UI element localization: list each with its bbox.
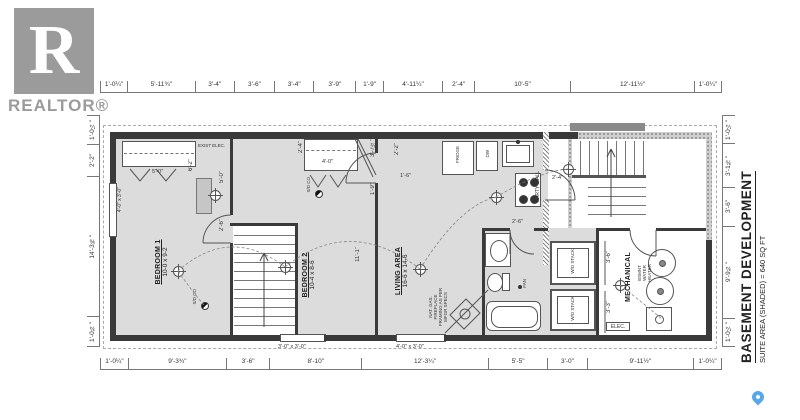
- dim-closet2-width: 2'-4": [298, 141, 304, 153]
- dim-bed1-door: 2'-6": [219, 219, 225, 231]
- dim-wd-b: 3'-3": [606, 301, 612, 313]
- wiring-arc: [496, 169, 568, 197]
- dim-closet2-length: 4'-0": [322, 159, 333, 165]
- dim-living-length: 11'-1": [355, 247, 361, 262]
- stair-arrow-middle: [260, 253, 268, 327]
- window-bottom-b-label: 4'-0" x 3'-0": [396, 344, 424, 350]
- room-label-bedroom2: BEDROOM 2 10-4 x 8-6: [302, 247, 320, 303]
- page-title: BASEMENT DEVELOPMENT: [739, 171, 756, 363]
- dim-seg: 1'-0¼": [87, 115, 99, 144]
- window-left-label: 4'-0" x 3'-0": [117, 187, 123, 212]
- dim-strip-left: 1'-0¼" 2'-2" 14'-3⅝" 1'-0¾": [87, 115, 100, 347]
- wiring-arc: [178, 247, 285, 271]
- dim-seg: 2'-2": [87, 144, 99, 176]
- dim-wd-a: 3'-6": [606, 251, 612, 263]
- party-wall-label: PARTY WALL: [535, 171, 541, 202]
- dim-kitchen-door: 1'-6": [400, 173, 411, 179]
- dim-hall-b: 1'-9": [370, 183, 376, 195]
- room-label-mechanical: MECHANICAL: [625, 249, 635, 305]
- window-bottom-a-label: 3'-0" x 3'-0": [278, 344, 306, 350]
- wiring-arc: [420, 197, 496, 269]
- dim-strip-right: 1'-0¼" 3'-1⅜" 3'-6" 9'-9¾" 1'-0¼": [722, 115, 735, 347]
- dim-seg: 9'-9¾": [723, 226, 735, 318]
- dim-closet1-depth: 6'-2": [188, 159, 194, 171]
- door-bedroom1: [203, 215, 231, 243]
- dim-suite-door: 2'-4": [552, 175, 563, 181]
- fireplace-vent: [460, 309, 470, 319]
- realtor-logo-letter: R: [29, 16, 80, 86]
- dim-kitchen-return: 2'-2": [394, 143, 400, 155]
- floor-plan: 1'-0¼" 5'-11¾" 3'-4" 3'-6" 3'-4" 3'-9" 1…: [100, 75, 722, 375]
- dim-seg: 1'-0¼": [723, 318, 735, 347]
- door-bathroom: [510, 230, 534, 254]
- water-heater-label: BSMNT WATER HEATER: [637, 260, 653, 286]
- dim-seg: 3'-1⅜": [723, 143, 735, 186]
- dim-closet1-door: 5'-0": [152, 169, 163, 175]
- wiring-arc: [178, 271, 204, 305]
- dim-bed1-window: 5'-0": [219, 171, 225, 183]
- stair-arrow-upper: [607, 149, 615, 217]
- dim-seg: 1'-0¼": [723, 115, 735, 143]
- fireplace: [445, 290, 488, 333]
- room-label-bedroom1: BEDROOM 1 10-0 x 9-2: [155, 234, 173, 290]
- title-block: BASEMENT DEVELOPMENT SUITE AREA (SHADED)…: [738, 153, 772, 363]
- suite-area-note: SUITE AREA (SHADED) = 640 SQ FT: [758, 153, 767, 363]
- map-pin-icon[interactable]: [750, 389, 767, 406]
- door-bedroom2: [346, 153, 376, 183]
- floor-plan-page: R REALTOR® BASEMENT DEVELOPMENT SUITE AR…: [0, 0, 800, 420]
- dim-hall-a: 3'-7½": [370, 139, 376, 157]
- room-label-living: LIVING AREA 16-6 x 14-6: [395, 241, 413, 301]
- closet2-bifold: [310, 175, 346, 187]
- plan-linework: [100, 75, 722, 375]
- realtor-logo: R: [14, 8, 94, 94]
- dim-seg: 1'-0¾": [87, 316, 99, 347]
- dim-seg: 3'-6": [723, 187, 735, 226]
- dim-bath-door: 2'-6": [512, 219, 523, 225]
- dim-seg: 14'-3⅝": [87, 176, 99, 317]
- fireplace-note: NAT. GAS. FIREPLACE FRAMING AS PER MFGR …: [428, 287, 444, 327]
